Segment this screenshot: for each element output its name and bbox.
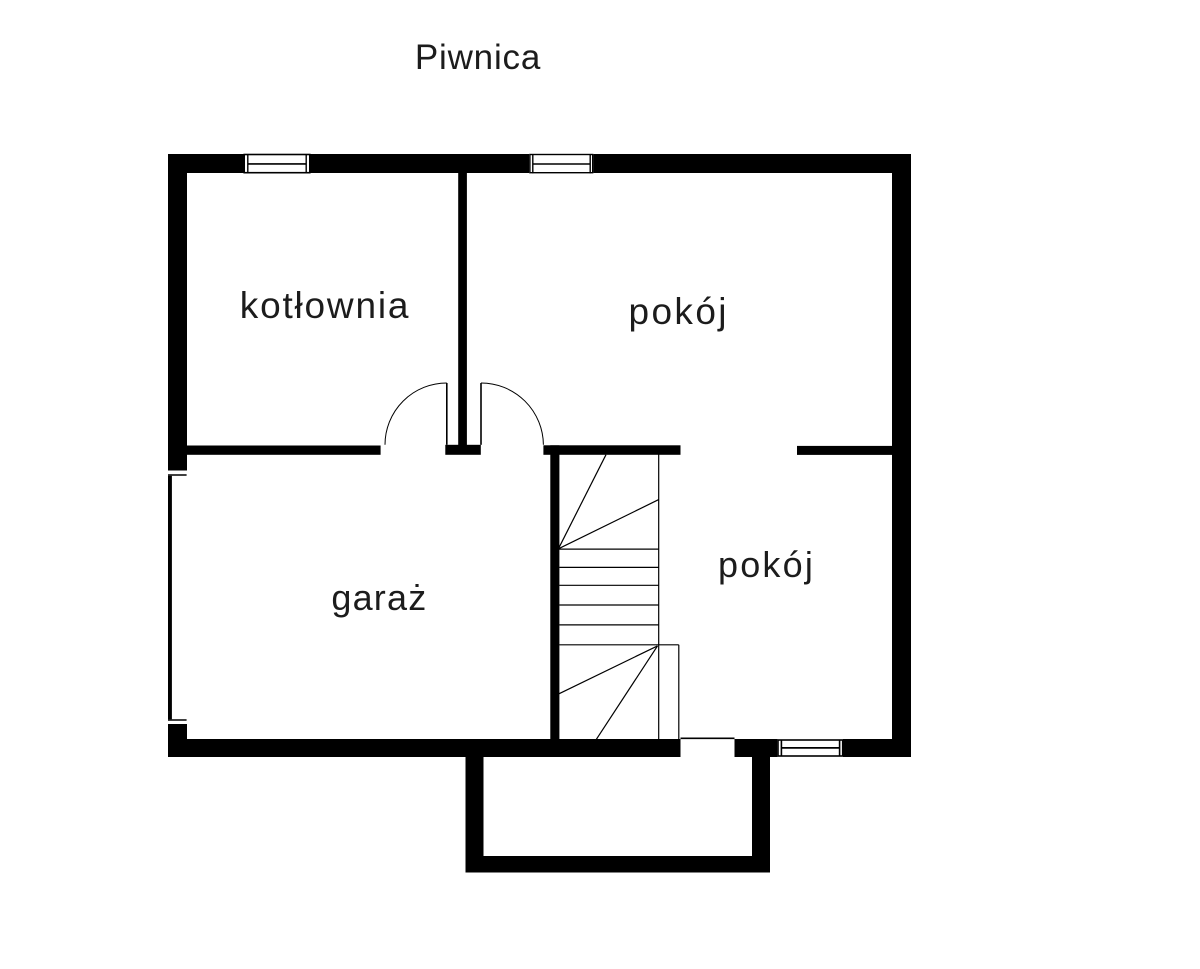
svg-text:kotłownia: kotłownia	[240, 285, 410, 326]
svg-text:pokój: pokój	[628, 291, 728, 332]
svg-text:Piwnica: Piwnica	[415, 38, 541, 77]
svg-text:pokój: pokój	[718, 544, 815, 585]
svg-text:garaż: garaż	[331, 577, 427, 618]
